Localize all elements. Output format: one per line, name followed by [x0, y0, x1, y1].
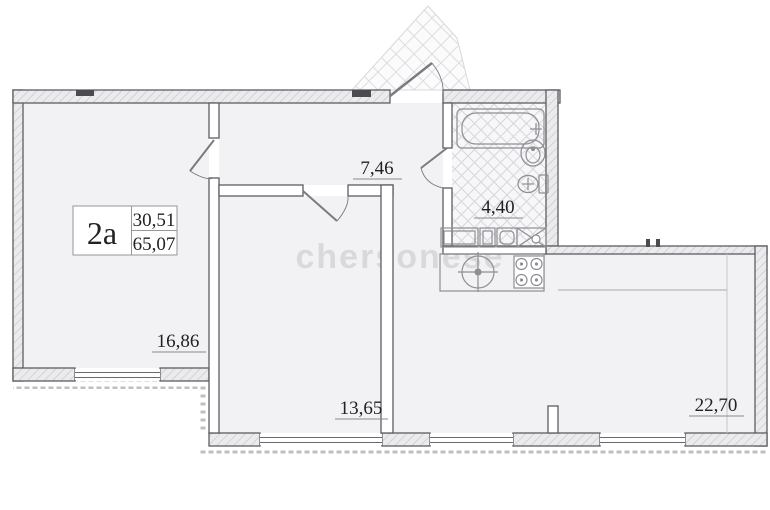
section-tick	[646, 239, 650, 247]
unit-total-area: 65,07	[133, 234, 176, 255]
svg-text:22,70: 22,70	[695, 395, 738, 416]
wall-left	[13, 90, 23, 381]
section-tick	[656, 239, 660, 247]
dashed-strip	[200, 389, 209, 433]
wall-pier	[13, 368, 75, 381]
section-tick	[352, 90, 371, 97]
wall-bathroom-right	[546, 90, 558, 246]
wall-kitchen-top	[546, 246, 767, 254]
wall-pier	[513, 433, 600, 446]
wall-pier	[209, 433, 260, 446]
stove-icon	[514, 256, 544, 288]
unit-living-area: 30,51	[133, 210, 176, 231]
wall-bedroom1-right	[209, 178, 219, 433]
svg-text:4,40: 4,40	[481, 197, 514, 218]
svg-text:16,86: 16,86	[157, 331, 200, 352]
wall-stub-living	[548, 406, 558, 433]
bedroom-1-area-label: 16,86	[152, 331, 206, 352]
hallway-floor	[219, 103, 443, 185]
unit-name: 2a	[87, 215, 117, 251]
floor-plan-svg: chersonese	[0, 0, 770, 510]
window-living-right	[600, 434, 685, 445]
bathroom-tiled-floor	[452, 103, 546, 247]
dashed-strip	[200, 446, 767, 454]
svg-text:7,46: 7,46	[360, 158, 393, 179]
entrance-landing-hatch	[352, 6, 470, 90]
wall-right	[755, 246, 767, 446]
bedroom-2-area-label: 13,65	[335, 398, 388, 419]
window-bedroom2	[260, 434, 382, 445]
wall-bedroom2-right	[381, 185, 393, 433]
wall-pier	[382, 433, 430, 446]
wall-bathroom-left-top	[443, 103, 452, 148]
window-living-left	[430, 434, 513, 445]
wall-top-right	[443, 90, 560, 103]
section-tick	[76, 90, 94, 96]
dashed-strip	[13, 381, 209, 389]
window-bedroom1	[75, 369, 160, 380]
wall-pier	[685, 433, 767, 446]
kitchen-living-area-label: 22,70	[689, 395, 744, 416]
wall-bedroom2-top-left	[219, 185, 303, 196]
wall-pier	[160, 368, 209, 381]
unit-info-box: 2a 30,51 65,07	[73, 206, 177, 255]
wall-top-left	[13, 90, 390, 103]
wall-stub	[209, 103, 219, 138]
svg-text:13,65: 13,65	[340, 398, 383, 419]
floor-plan: chersonese	[0, 0, 770, 510]
